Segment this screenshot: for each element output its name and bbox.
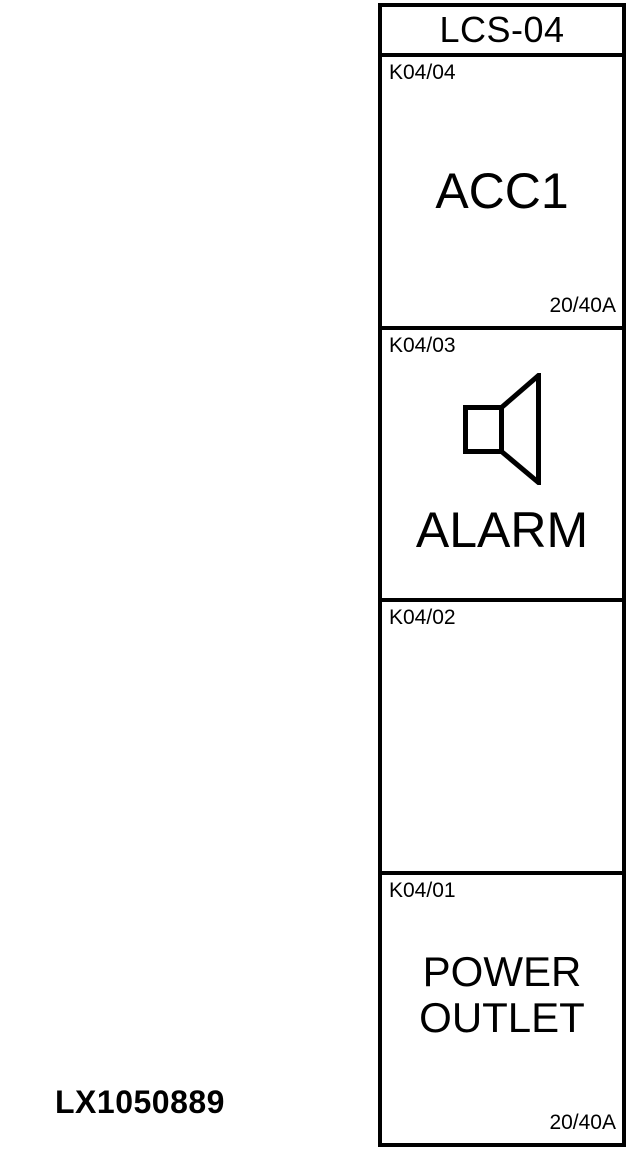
cell-function-line-2: OUTLET: [419, 995, 585, 1041]
cell-id-label: K04/04: [389, 61, 456, 85]
cell-rating-label: 20/40A: [549, 1111, 616, 1135]
fuse-cell-k04-01: K04/01 POWER OUTLET 20/40A: [382, 875, 622, 1144]
cell-rating-label: 20/40A: [549, 294, 616, 318]
panel-title: LCS-04: [382, 7, 622, 57]
diagram-page: LCS-04 K04/04 ACC1 20/40A K04/03 ALARM K…: [0, 0, 629, 1171]
cell-function-label: ALARM: [416, 505, 588, 555]
power-outlet-cell-content: POWER OUTLET: [382, 875, 622, 1144]
alarm-cell-content: ALARM: [382, 330, 622, 599]
fuse-cell-k04-03: K04/03 ALARM: [382, 330, 622, 603]
fuse-cell-k04-04: K04/04 ACC1 20/40A: [382, 57, 622, 330]
fuse-cell-k04-02: K04/02: [382, 602, 622, 875]
cell-function-label: POWER OUTLET: [419, 949, 585, 1041]
cell-function-label: ACC1: [382, 162, 622, 220]
cell-function-line-1: POWER: [419, 949, 585, 995]
speaker-icon: [463, 373, 541, 485]
cell-id-label: K04/02: [389, 606, 456, 630]
fuse-panel-lcs-04: LCS-04 K04/04 ACC1 20/40A K04/03 ALARM K…: [378, 3, 626, 1147]
figure-id-label: LX1050889: [55, 1084, 225, 1121]
